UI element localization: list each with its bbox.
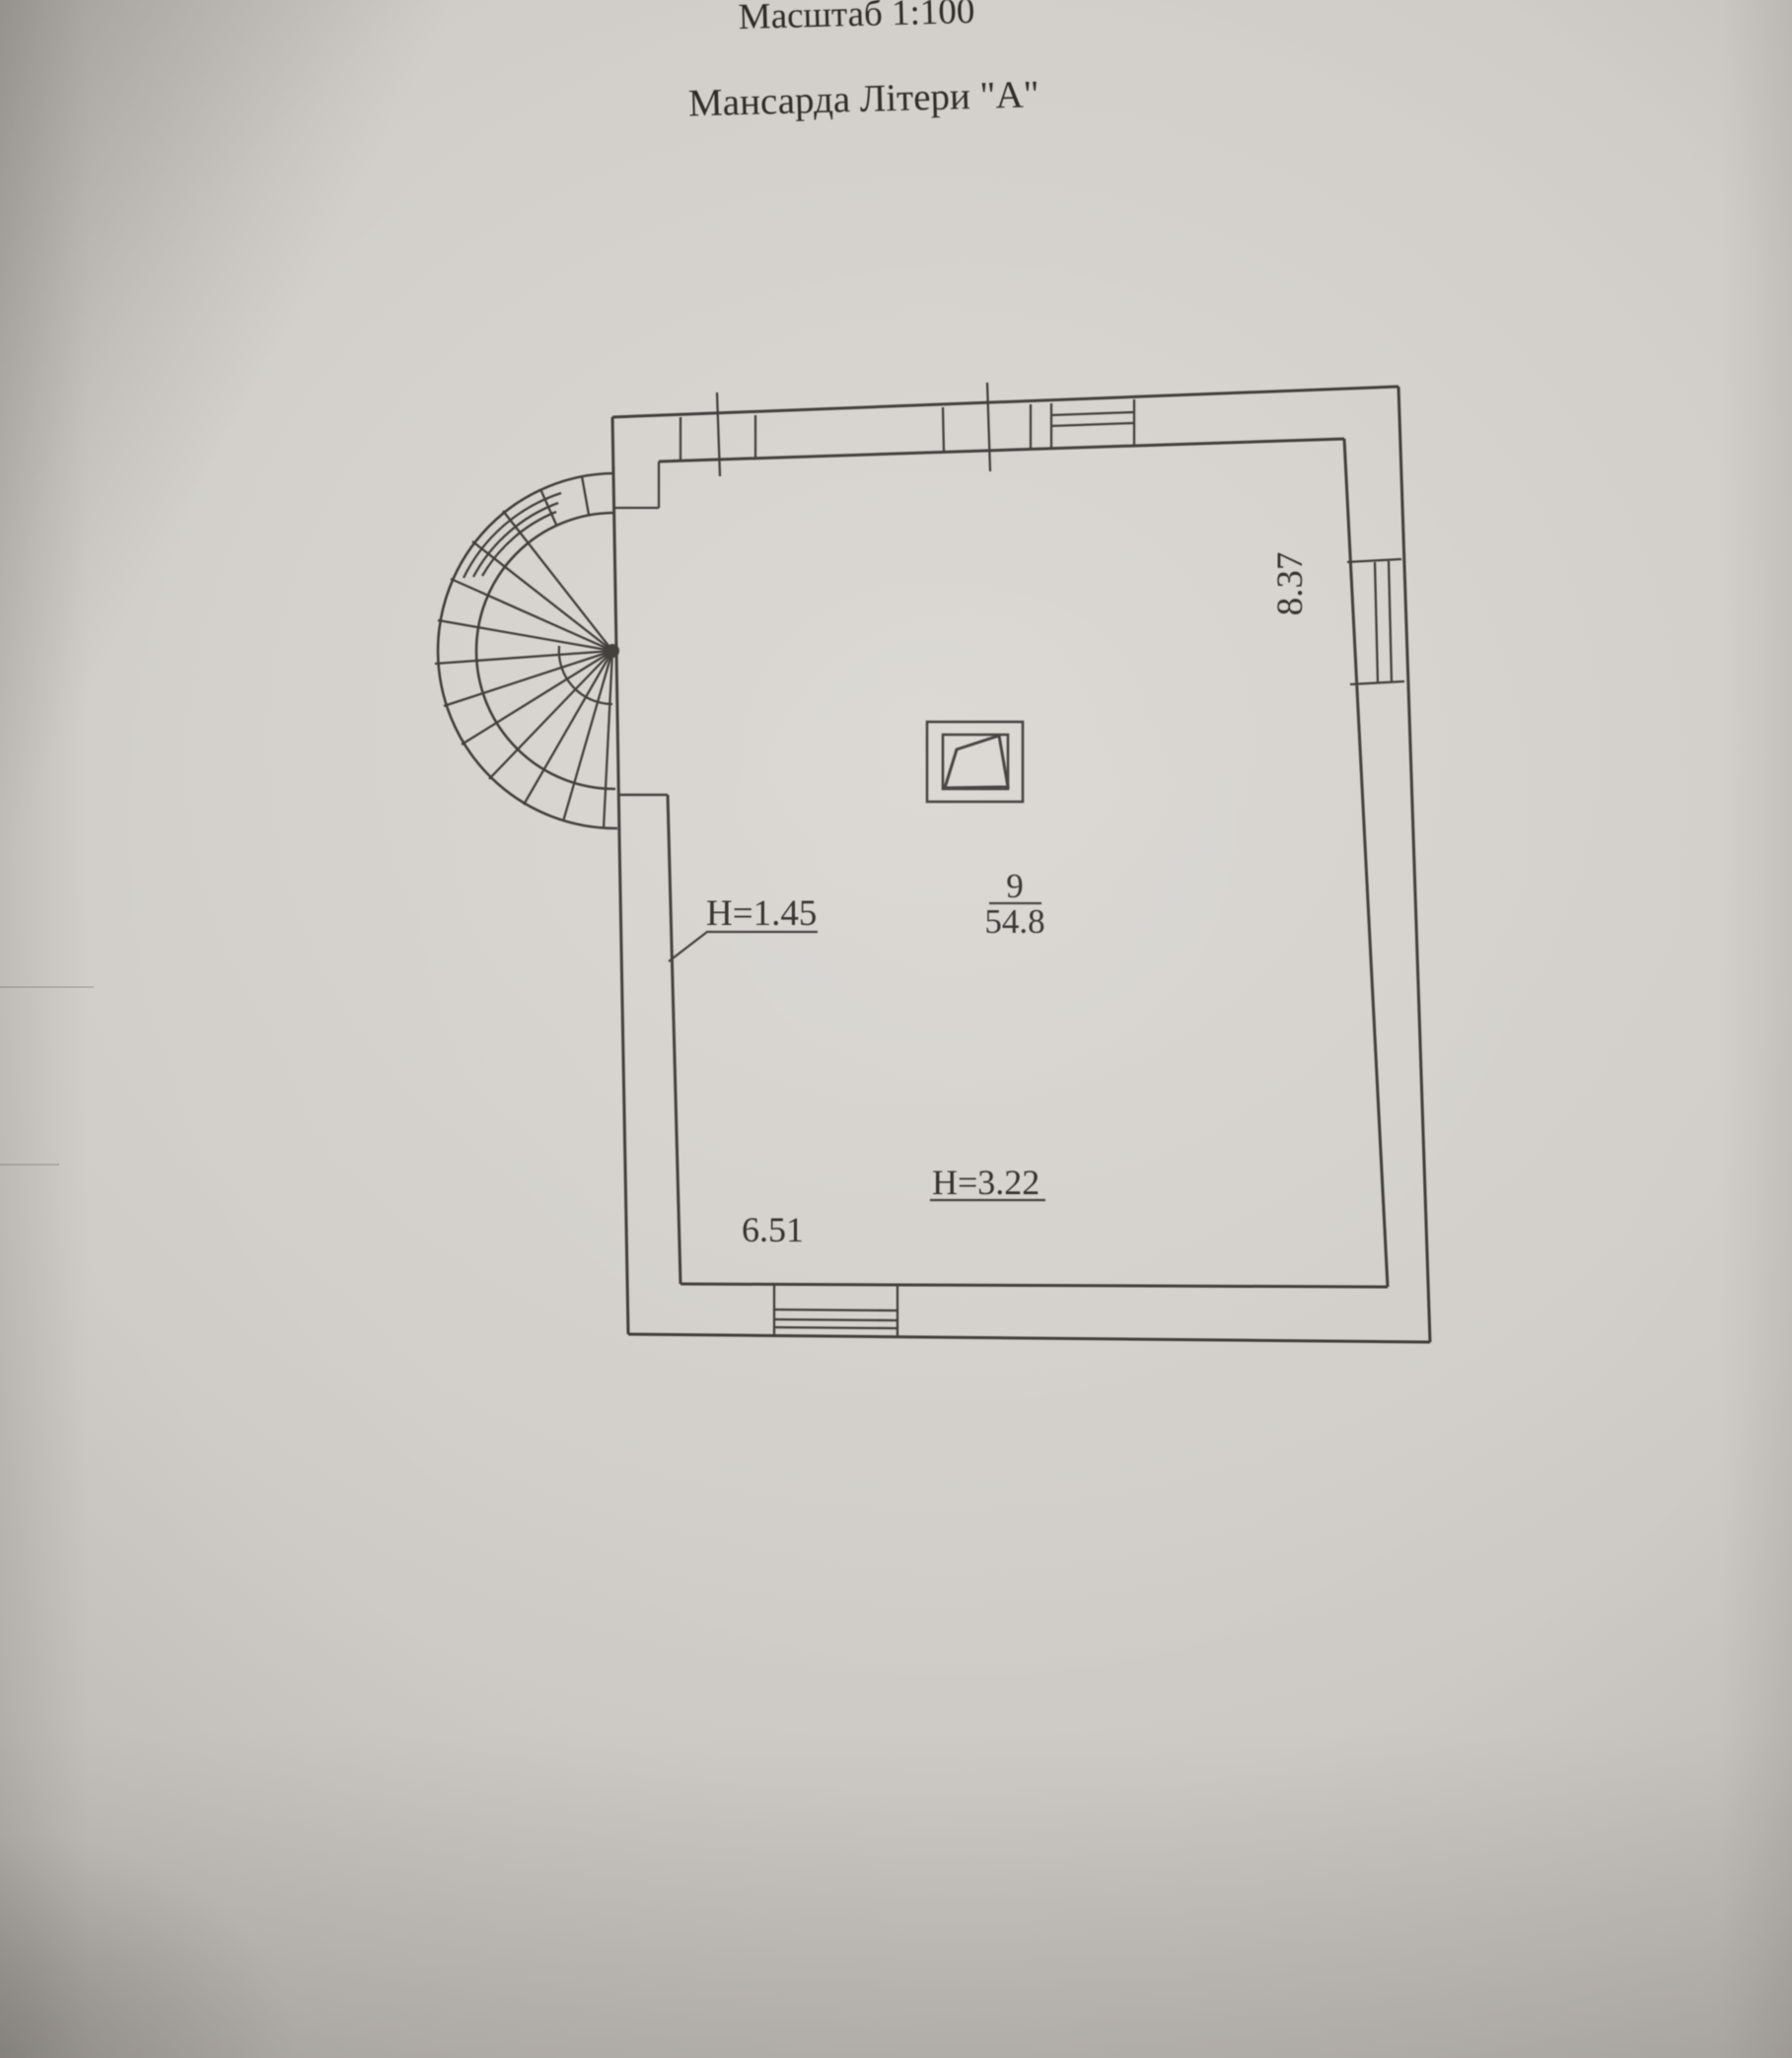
right-dimension-label: 8.37	[1270, 552, 1311, 616]
ceiling-height-high-label: H=3.22	[932, 1163, 1039, 1202]
axis-tick	[987, 383, 990, 471]
step-line	[774, 1319, 897, 1320]
bottom-wall-inner-edge	[681, 1284, 1388, 1287]
tread-line	[582, 476, 589, 515]
entrance-steps	[774, 1284, 897, 1336]
top-wall	[612, 383, 1398, 508]
spiral-staircase	[435, 473, 619, 828]
top-wall-outer-edge	[612, 387, 1398, 417]
scanned-floor-plan-page: Масштаб 1:100 Мансарда Літери "А"	[0, 0, 1792, 2058]
right-wall	[1344, 387, 1430, 1342]
drawing-title-label: Мансарда Літери "А"	[687, 73, 1039, 124]
room-area-label: 54.8	[984, 902, 1044, 941]
height-leader-line	[669, 932, 818, 961]
stair-newel-post	[606, 644, 619, 658]
window-pane-line	[1051, 412, 1134, 415]
left-wall-inner-edge	[668, 795, 681, 1284]
top-wall-inner-edge	[659, 439, 1344, 461]
window-pane-line	[1375, 562, 1378, 683]
tread-line	[503, 511, 612, 651]
tread-line	[435, 651, 612, 664]
window-pane-line	[1389, 561, 1392, 682]
window-pane-line	[1051, 423, 1134, 426]
window-cap	[1347, 559, 1401, 562]
step-line	[774, 1310, 897, 1311]
tread-line	[472, 541, 612, 651]
axis-tick	[717, 392, 720, 476]
wall-divider	[943, 407, 944, 453]
bottom-wall	[628, 1284, 1430, 1342]
tread-line	[438, 620, 612, 651]
left-wall	[612, 417, 681, 1334]
roof-window-sash	[945, 736, 1008, 788]
annotation-lines	[669, 903, 1045, 1200]
right-wall-outer-edge	[1398, 387, 1430, 1342]
right-wall-inner-edge	[1344, 439, 1388, 1287]
scale-label: Масштаб 1:100	[738, 0, 975, 37]
plan-annotations: H=1.45 9 54.8 H=3.22 6.51 8.37	[706, 552, 1311, 1249]
top-window	[1051, 412, 1134, 426]
page-titles: Масштаб 1:100 Мансарда Літери "А"	[685, 0, 1039, 125]
bottom-wall-outer-edge	[628, 1334, 1430, 1342]
bottom-dimension-label: 6.51	[742, 1210, 804, 1249]
step-line	[774, 1327, 897, 1328]
roof-window	[927, 722, 1023, 802]
left-wall-outer-edge	[612, 417, 628, 1334]
floor-plan-svg: Масштаб 1:100 Мансарда Літери "А"	[0, 0, 1792, 2058]
room-number-label: 9	[1006, 867, 1024, 905]
tread-line	[451, 579, 612, 651]
ceiling-height-low-label: H=1.45	[706, 893, 817, 934]
